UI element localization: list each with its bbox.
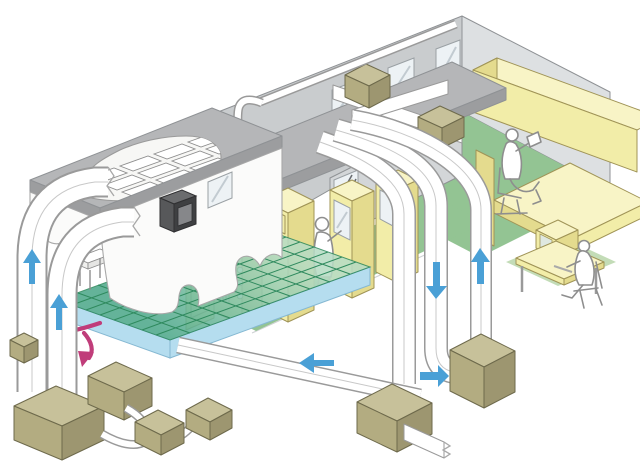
outdoor-unit-small-a (10, 333, 38, 363)
air-handling-unit-h (450, 334, 515, 408)
outdoor-unit-cube-d (186, 398, 232, 440)
diagram-canvas (0, 0, 640, 467)
isometric-hvac-diagram (0, 0, 640, 467)
wall-control-box (160, 190, 196, 232)
